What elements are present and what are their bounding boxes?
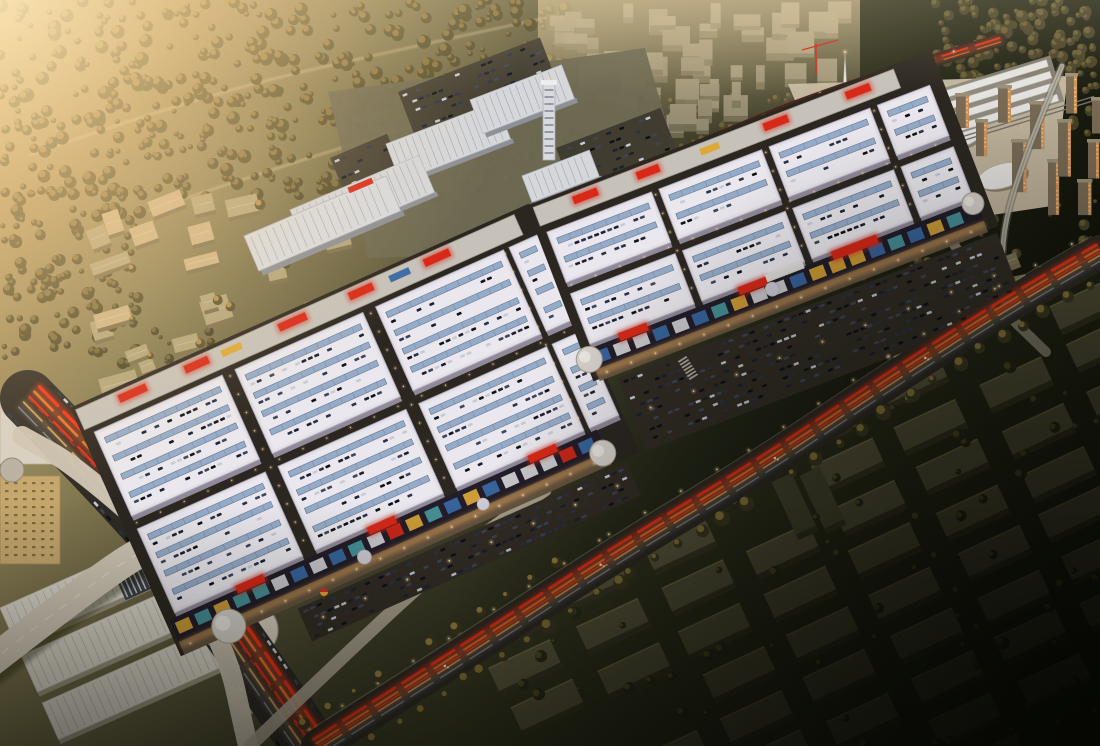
architectural-rendering <box>0 0 1100 746</box>
aerial-rendering-canvas <box>0 0 1100 746</box>
